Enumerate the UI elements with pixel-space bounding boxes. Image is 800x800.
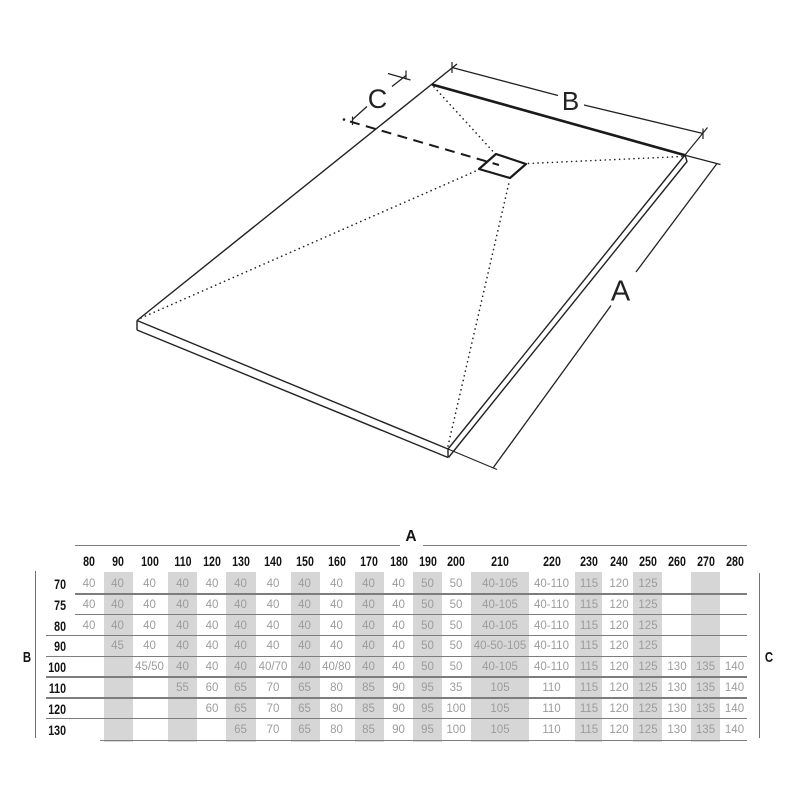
svg-text:A: A [611,276,631,308]
svg-text:C: C [368,84,388,114]
svg-text:B: B [562,86,579,116]
